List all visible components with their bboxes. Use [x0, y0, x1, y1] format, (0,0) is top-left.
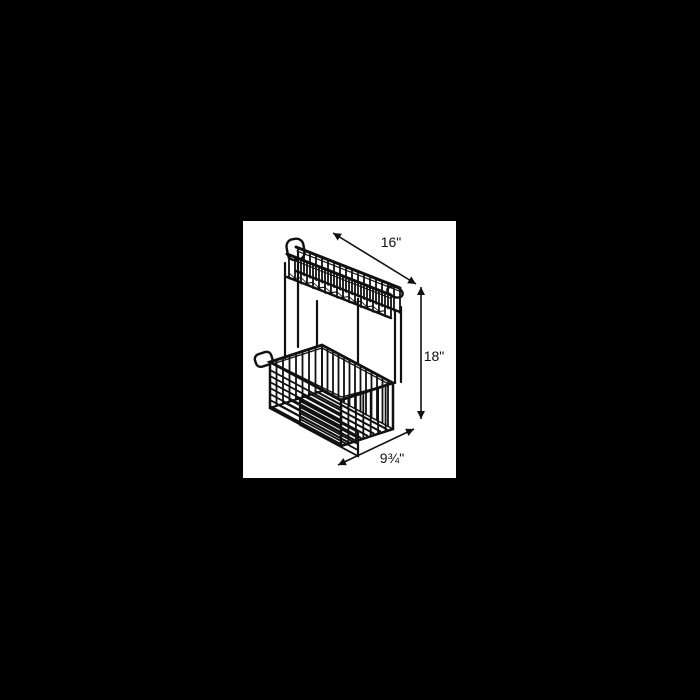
black-background: 16" 18" 9¾" [0, 0, 700, 700]
dimension-label-height: 18" [424, 348, 445, 364]
dimension-label-width: 16" [381, 234, 402, 250]
dimension-label-depth: 9¾" [380, 450, 404, 466]
bottom-basket [254, 345, 393, 456]
diagram-panel: 16" 18" 9¾" [243, 221, 456, 478]
wire-basket-diagram: 16" 18" 9¾" [243, 221, 456, 478]
